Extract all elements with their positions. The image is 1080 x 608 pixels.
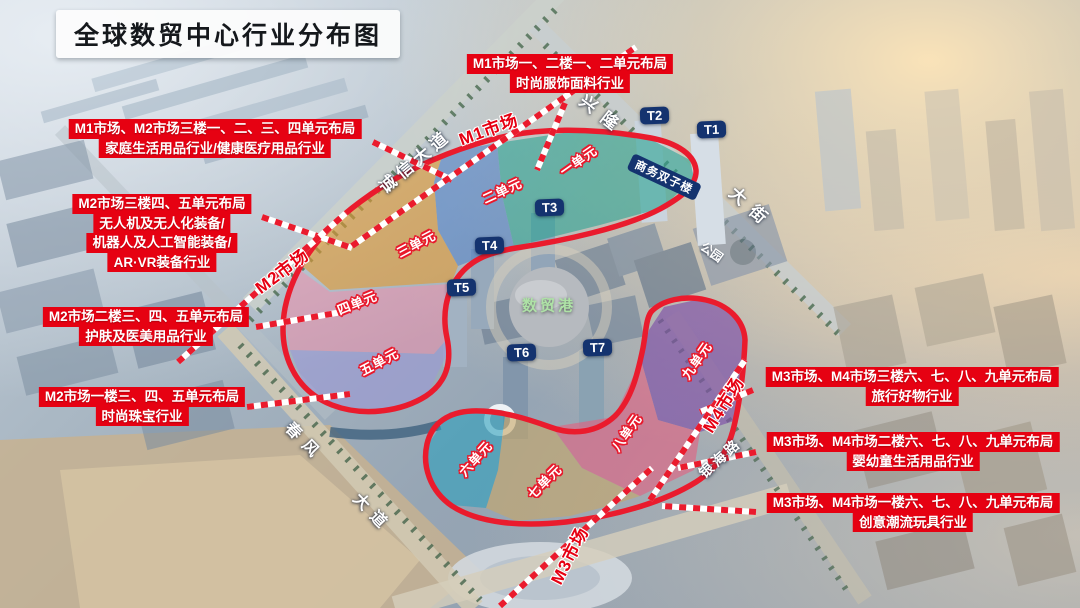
annotation-line: 家庭生活用品行业/健康医疗用品行业 xyxy=(99,139,331,159)
annotation-line: 无人机及无人化装备/ xyxy=(93,214,230,234)
annotation-m1-floors-1-2: M1市场一、二楼一、二单元布局 时尚服饰面料行业 xyxy=(467,54,673,93)
annotation-line: 机器人及人工智能装备/ xyxy=(87,233,238,253)
annotation-line: 时尚珠宝行业 xyxy=(95,407,188,427)
trade-port-label: 数贸港 xyxy=(522,295,576,316)
building-tag-t1: T1 xyxy=(697,120,727,138)
annotation-line: M2市场一楼三、四、五单元布局 xyxy=(39,387,245,407)
building-tag-t2: T2 xyxy=(640,106,670,124)
annotation-line: 婴幼童生活用品行业 xyxy=(846,452,980,472)
building-tag-t5: T5 xyxy=(447,278,477,296)
annotation-line: AR·VR装备行业 xyxy=(108,253,217,273)
annotation-m2-floor-3: M2市场三楼四、五单元布局 无人机及无人化装备/ 机器人及人工智能装备/ AR·… xyxy=(72,194,251,272)
building-tag-t7: T7 xyxy=(583,338,613,356)
annotation-m3-m4-floor-2: M3市场、M4市场二楼六、七、八、九单元布局 婴幼童生活用品行业 xyxy=(767,432,1060,471)
page-title: 全球数贸中心行业分布图 xyxy=(56,10,400,58)
annotation-m3-m4-floor-3: M3市场、M4市场三楼六、七、八、九单元布局 旅行好物行业 xyxy=(766,367,1059,406)
annotation-line: M2市场二楼三、四、五单元布局 xyxy=(43,307,249,327)
annotation-line: M3市场、M4市场一楼六、七、八、九单元布局 xyxy=(767,493,1060,513)
map-canvas: 全球数贸中心行业分布图 M1市场一、二楼一、二单元布局 时尚服饰面料行业 M1市… xyxy=(0,0,1080,608)
annotation-line: M3市场、M4市场二楼六、七、八、九单元布局 xyxy=(767,432,1060,452)
building-tag-t3: T3 xyxy=(535,198,565,216)
annotation-m1-m2-floor-3: M1市场、M2市场三楼一、二、三、四单元布局 家庭生活用品行业/健康医疗用品行业 xyxy=(69,119,362,158)
annotation-m2-floor-1: M2市场一楼三、四、五单元布局 时尚珠宝行业 xyxy=(39,387,245,426)
annotation-line: 旅行好物行业 xyxy=(865,387,958,407)
annotation-line: M2市场三楼四、五单元布局 xyxy=(72,194,251,214)
annotation-line: M1市场、M2市场三楼一、二、三、四单元布局 xyxy=(69,119,362,139)
annotation-line: 时尚服饰面料行业 xyxy=(510,74,630,94)
building-tag-t6: T6 xyxy=(507,343,537,361)
building-tag-t4: T4 xyxy=(475,236,505,254)
annotation-line: M1市场一、二楼一、二单元布局 xyxy=(467,54,673,74)
annotation-line: 护肤及医美用品行业 xyxy=(79,327,213,347)
annotation-m2-floor-2: M2市场二楼三、四、五单元布局 护肤及医美用品行业 xyxy=(43,307,249,346)
annotation-m3-m4-floor-1: M3市场、M4市场一楼六、七、八、九单元布局 创意潮流玩具行业 xyxy=(767,493,1060,532)
annotation-line: M3市场、M4市场三楼六、七、八、九单元布局 xyxy=(766,367,1059,387)
annotation-line: 创意潮流玩具行业 xyxy=(853,513,973,533)
